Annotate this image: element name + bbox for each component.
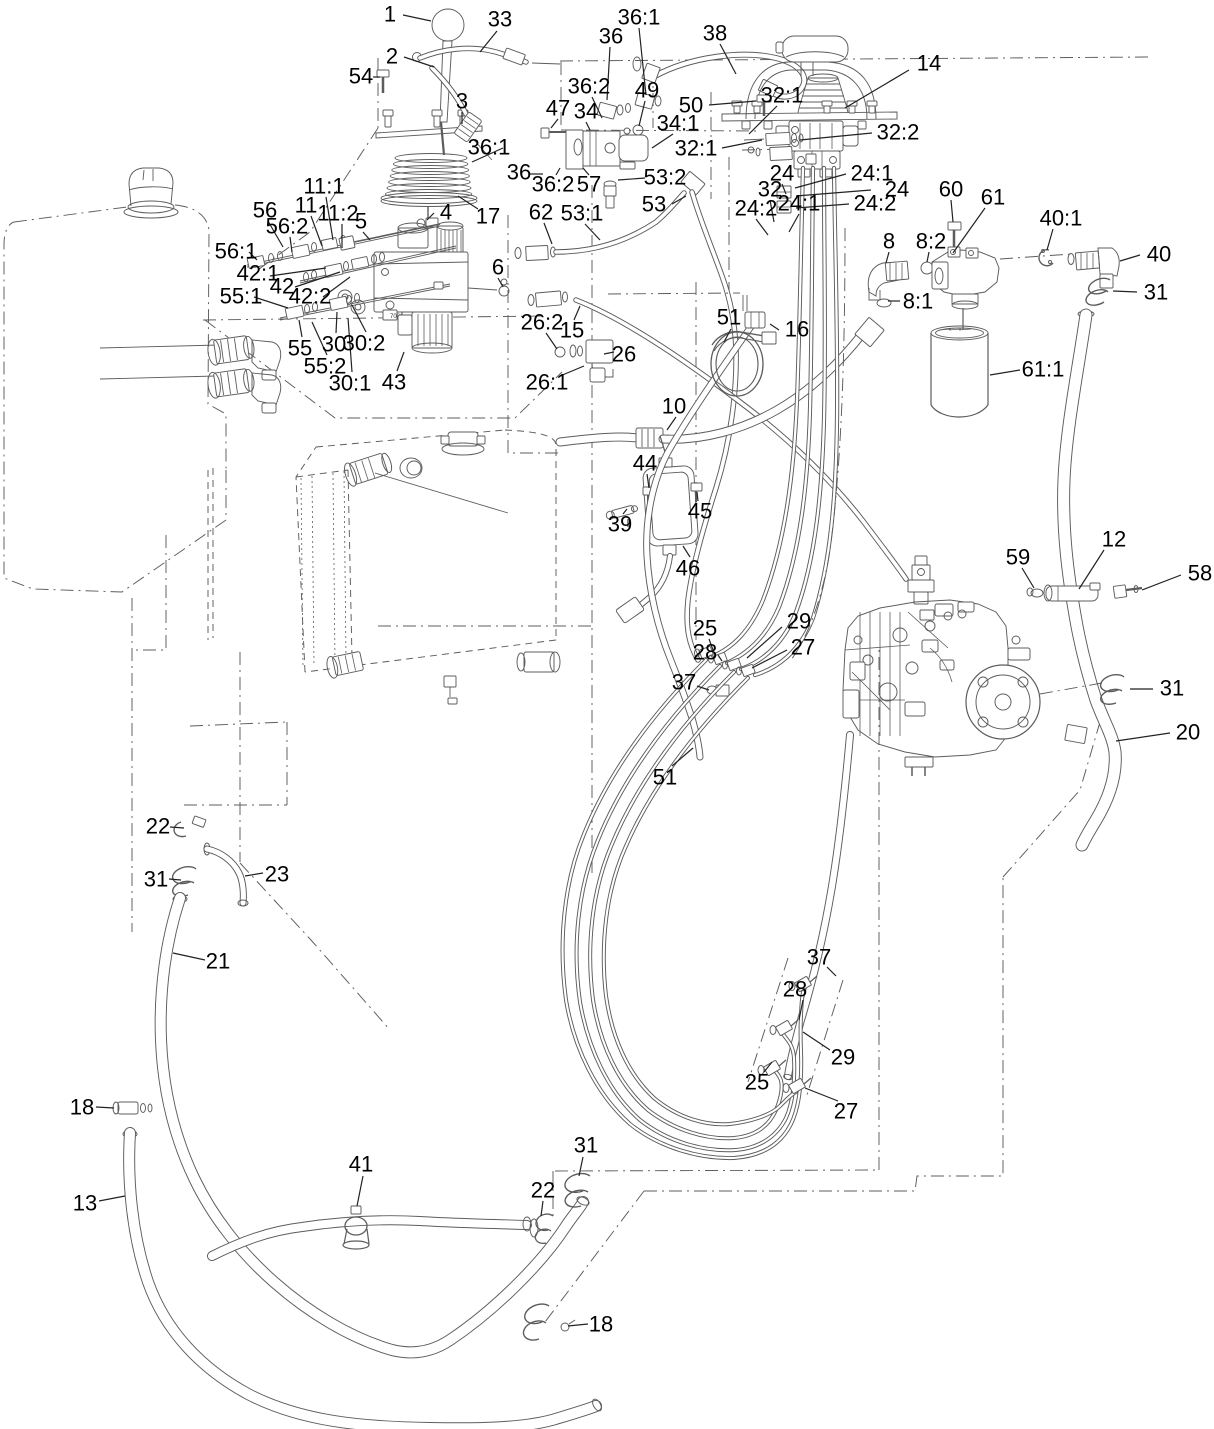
svg-text:20: 20 [1176, 720, 1200, 745]
svg-text:26: 26 [612, 342, 636, 367]
svg-text:24:2: 24:2 [854, 191, 897, 216]
svg-text:55:1: 55:1 [220, 284, 263, 309]
svg-text:36:2: 36:2 [532, 172, 575, 197]
svg-text:22: 22 [531, 1178, 555, 1203]
svg-text:54: 54 [349, 64, 373, 89]
svg-text:41: 41 [349, 1152, 373, 1177]
svg-text:17: 17 [476, 204, 500, 229]
svg-text:26:1: 26:1 [526, 370, 569, 395]
svg-text:4: 4 [440, 200, 452, 225]
svg-text:32:2: 32:2 [877, 120, 920, 145]
svg-text:36: 36 [507, 160, 531, 185]
svg-text:18: 18 [70, 1095, 94, 1120]
svg-text:13: 13 [73, 1191, 97, 1216]
svg-text:56:2: 56:2 [266, 214, 309, 239]
svg-text:61: 61 [981, 185, 1005, 210]
svg-text:53:2: 53:2 [644, 165, 687, 190]
svg-text:25: 25 [693, 616, 717, 641]
svg-text:49: 49 [635, 78, 659, 103]
svg-text:51: 51 [653, 765, 677, 790]
svg-text:60: 60 [939, 177, 963, 202]
svg-text:14: 14 [917, 51, 941, 76]
svg-text:32:1: 32:1 [761, 83, 804, 108]
svg-text:25: 25 [745, 1070, 769, 1095]
svg-text:27: 27 [791, 635, 815, 660]
svg-text:24:1: 24:1 [778, 191, 821, 216]
svg-text:37: 37 [672, 670, 696, 695]
svg-text:39: 39 [608, 512, 632, 537]
svg-text:27: 27 [834, 1099, 858, 1124]
svg-text:45: 45 [688, 499, 712, 524]
svg-text:32:1: 32:1 [675, 136, 718, 161]
svg-text:30:2: 30:2 [343, 331, 386, 356]
svg-text:29: 29 [787, 609, 811, 634]
svg-text:36:1: 36:1 [618, 5, 661, 30]
svg-text:3: 3 [456, 89, 468, 114]
svg-text:28: 28 [783, 977, 807, 1002]
svg-text:51: 51 [717, 305, 741, 330]
svg-text:11:2: 11:2 [317, 201, 358, 226]
svg-text:36:1: 36:1 [468, 135, 511, 160]
svg-text:28: 28 [693, 640, 717, 665]
svg-text:37: 37 [807, 945, 831, 970]
svg-text:43: 43 [382, 370, 406, 395]
svg-text:24:2: 24:2 [735, 196, 778, 221]
svg-text:8:1: 8:1 [903, 289, 934, 314]
svg-text:22: 22 [146, 814, 170, 839]
svg-text:62: 62 [529, 200, 553, 225]
svg-text:42:2: 42:2 [289, 284, 332, 309]
svg-text:8: 8 [883, 229, 895, 254]
svg-text:58: 58 [1188, 561, 1212, 586]
svg-text:34:1: 34:1 [657, 111, 700, 136]
svg-text:53:1: 53:1 [561, 201, 604, 226]
svg-text:31: 31 [1144, 280, 1168, 305]
svg-text:53: 53 [642, 192, 666, 217]
svg-text:21: 21 [206, 949, 230, 974]
svg-text:12: 12 [1102, 527, 1126, 552]
svg-text:33: 33 [488, 7, 512, 32]
svg-text:38: 38 [703, 21, 727, 46]
svg-text:31: 31 [1160, 676, 1184, 701]
svg-text:40:1: 40:1 [1040, 206, 1083, 231]
svg-text:15: 15 [560, 318, 584, 343]
svg-text:18: 18 [589, 1312, 613, 1337]
svg-text:57: 57 [577, 172, 601, 197]
svg-text:34: 34 [574, 99, 598, 124]
svg-text:46: 46 [676, 556, 700, 581]
svg-text:23: 23 [265, 862, 289, 887]
svg-text:5: 5 [355, 209, 367, 234]
svg-text:36:2: 36:2 [568, 74, 611, 99]
svg-text:6: 6 [492, 255, 504, 280]
svg-text:59: 59 [1006, 545, 1030, 570]
svg-text:30:1: 30:1 [329, 371, 372, 396]
svg-text:61:1: 61:1 [1022, 357, 1065, 382]
svg-text:10: 10 [662, 394, 686, 419]
svg-text:44: 44 [633, 451, 657, 476]
svg-text:31: 31 [574, 1133, 598, 1158]
svg-text:8:2: 8:2 [916, 229, 947, 254]
svg-text:1: 1 [384, 2, 396, 27]
svg-text:2: 2 [386, 44, 398, 69]
svg-text:26:2: 26:2 [521, 310, 564, 335]
svg-text:31: 31 [144, 867, 168, 892]
svg-text:16: 16 [785, 317, 809, 342]
svg-text:29: 29 [831, 1045, 855, 1070]
svg-text:40: 40 [1147, 242, 1171, 267]
svg-text:47: 47 [546, 96, 570, 121]
